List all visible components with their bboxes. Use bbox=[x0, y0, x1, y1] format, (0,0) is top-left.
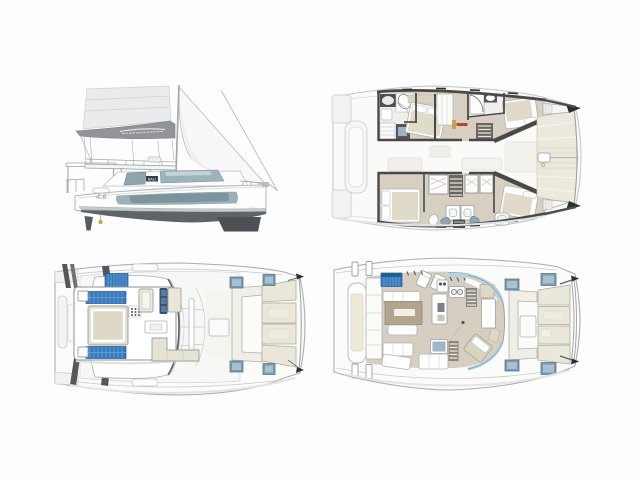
svg-text:4.6: 4.6 bbox=[95, 192, 107, 201]
svg-text:BALI: BALI bbox=[148, 178, 156, 182]
